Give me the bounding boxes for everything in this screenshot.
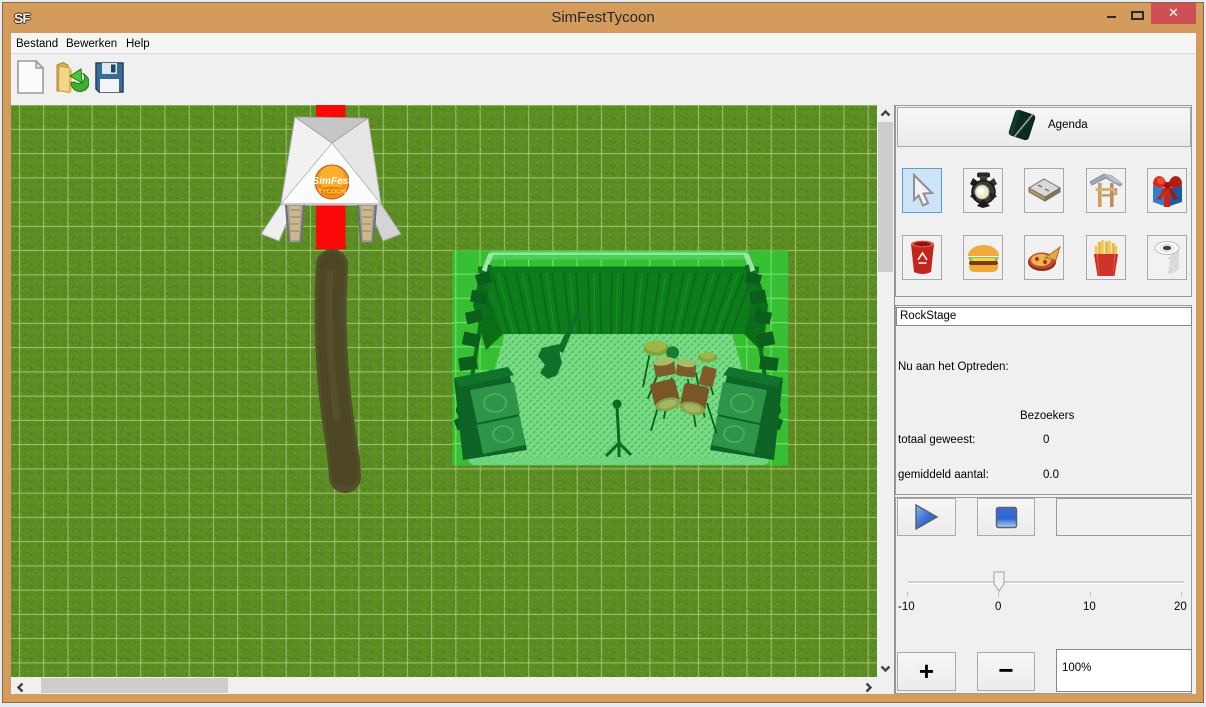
svg-text:TYCOON: TYCOON xyxy=(318,189,346,196)
svg-text:SimFest: SimFest xyxy=(313,176,353,187)
